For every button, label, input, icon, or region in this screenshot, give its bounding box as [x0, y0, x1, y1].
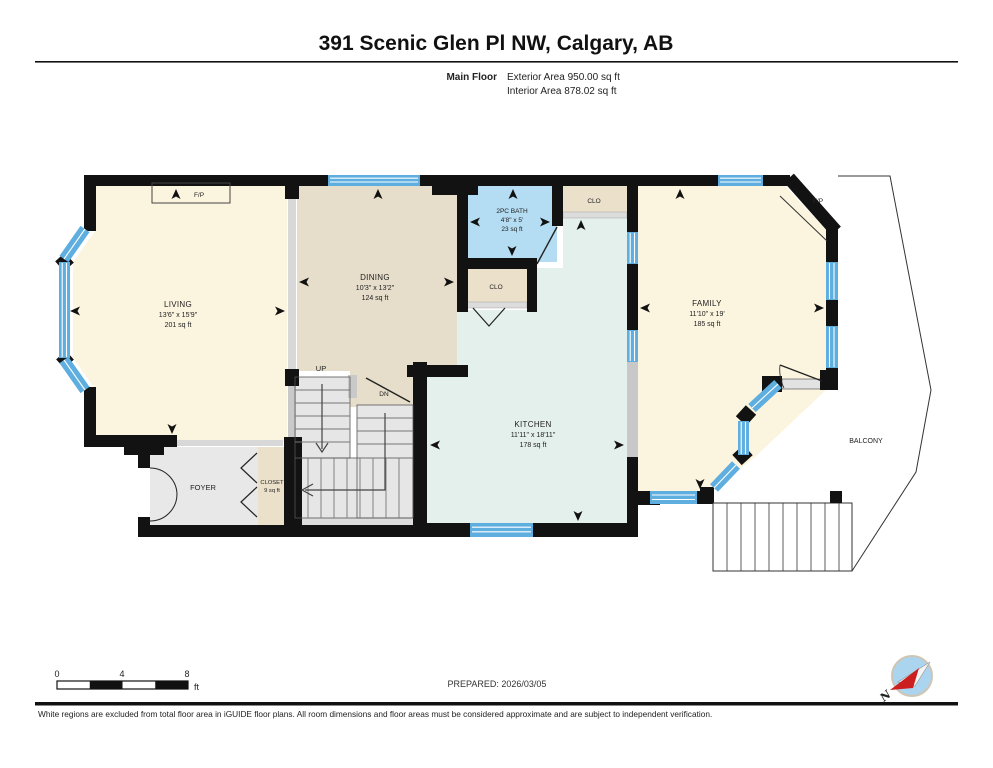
stairs-up-label: UP	[316, 364, 326, 373]
footer-divider	[35, 702, 958, 706]
interior-area-label: Interior Area 878.02 sq ft	[507, 86, 617, 97]
header: 391 Scenic Glen Pl NW, Calgary, AB Main …	[35, 32, 958, 97]
living-label: LIVING	[164, 300, 192, 309]
compass-icon: N	[877, 656, 932, 705]
dining-area: 124 sq ft	[362, 295, 389, 302]
scale-tick-8: 8	[184, 669, 189, 679]
exterior-area-label: Exterior Area 950.00 sq ft	[507, 72, 620, 83]
balcony-label: BALCONY	[849, 438, 883, 445]
bath-label: 2PC BATH	[496, 208, 528, 215]
scale-bar: 0 4 8 ft	[54, 669, 199, 692]
footer-disclaimer: White regions are excluded from total fl…	[38, 709, 712, 719]
floor-label: Main Floor	[446, 72, 497, 83]
room-fills	[73, 186, 828, 527]
balcony-door-sill	[782, 379, 823, 389]
dining-top-window	[328, 175, 420, 186]
living-dims: 13'6" x 15'9"	[159, 312, 198, 319]
header-divider	[35, 61, 958, 63]
scale-tick-0: 0	[54, 669, 59, 679]
closet-label: CLOSET	[260, 480, 284, 486]
family-bottom-window	[650, 491, 697, 504]
balcony-stairs	[713, 503, 852, 571]
family-top-window	[718, 175, 763, 186]
prepared-date: PREPARED: 2026/03/05	[448, 679, 547, 689]
floorplan-page: 391 Scenic Glen Pl NW, Calgary, AB Main …	[0, 0, 993, 768]
kitchen-label: KITCHEN	[514, 420, 551, 429]
family-dims: 11'10" x 19'	[689, 311, 724, 318]
bath-dims: 4'8" x 5'	[501, 217, 524, 224]
kitchen-area: 178 sq ft	[520, 442, 547, 449]
closet-top-label: CLO	[587, 198, 600, 205]
living-area: 201 sq ft	[165, 322, 192, 329]
dining-label: DINING	[360, 273, 390, 282]
footer: White regions are excluded from total fl…	[35, 702, 958, 719]
balcony-post	[830, 491, 842, 503]
fireplace-living-label: F/P	[194, 192, 204, 199]
kitchen-dims: 11'11" x 18'11"	[511, 432, 556, 439]
floorplan-canvas: 391 Scenic Glen Pl NW, Calgary, AB Main …	[0, 0, 993, 768]
closet-floor	[258, 447, 288, 525]
bath-area: 23 sq ft	[501, 226, 523, 233]
kitchen-bottom-window	[470, 523, 533, 537]
stairs-lower-floor	[295, 458, 413, 518]
page-title: 391 Scenic Glen Pl NW, Calgary, AB	[319, 32, 674, 55]
fireplace-family-label: F/P	[813, 198, 823, 205]
foyer-label: FOYER	[190, 483, 216, 492]
scale-unit: ft	[194, 682, 200, 692]
scale-tick-4: 4	[119, 669, 124, 679]
kitchen-half-wall	[627, 362, 638, 457]
dining-dims: 10'3" x 13'2"	[356, 285, 395, 292]
family-area: 185 sq ft	[694, 321, 721, 328]
family-label: FAMILY	[692, 299, 722, 308]
stairs-down-label: DN	[379, 391, 389, 398]
closet-mid-label: CLO	[489, 284, 502, 291]
closet-area: 9 sq ft	[264, 488, 280, 494]
family-room-floor	[637, 186, 828, 491]
